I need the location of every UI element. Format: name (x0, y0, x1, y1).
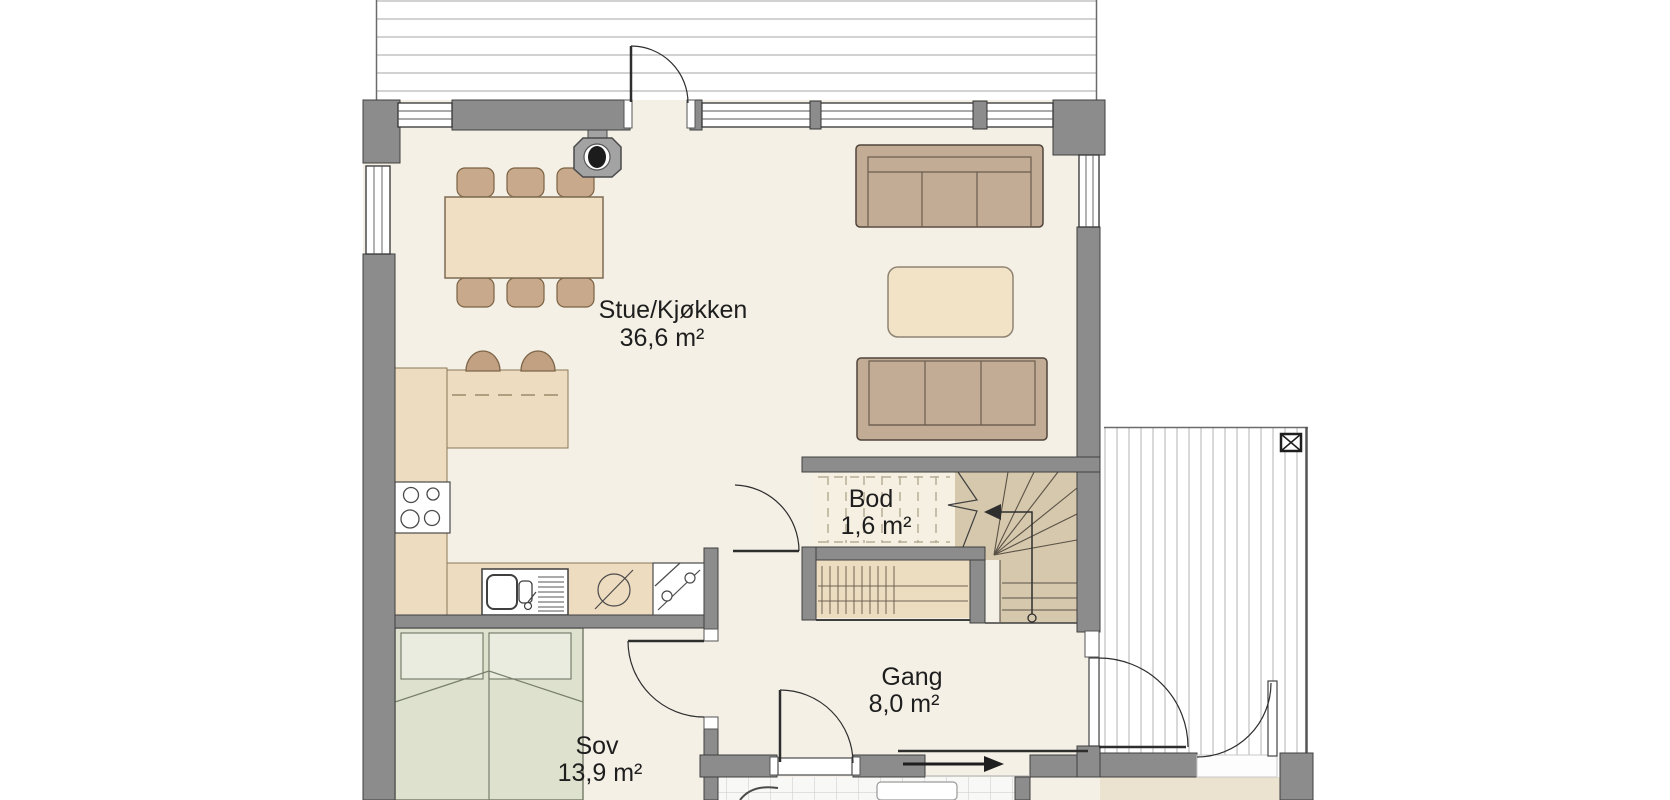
wall-corner-topright (1053, 100, 1105, 155)
wall-south-2 (853, 755, 925, 777)
sink-icon (482, 569, 568, 615)
top-deck (376, 0, 1097, 101)
room-area-stue: 36,6 m² (620, 324, 705, 352)
wall-kitchen-south (395, 615, 718, 628)
window (398, 103, 452, 127)
bathroom (718, 777, 1015, 800)
wall-southeast-1 (1100, 753, 1197, 777)
wall-bath-divider (1015, 777, 1030, 800)
floor-plan-page: Stue/Kjøkken 36,6 m² Bod 1,6 m² Gang 8,0… (0, 0, 1670, 800)
door-leaf-closed (1089, 658, 1099, 746)
wall-flight-left (802, 547, 816, 620)
door-leaf (1268, 681, 1277, 756)
door-leaf-closed (778, 758, 852, 775)
stair-lower-flight (816, 560, 970, 618)
pillow (401, 633, 483, 679)
room-label-stue: Stue/Kjøkken (599, 296, 748, 324)
wall-south-1 (700, 755, 777, 777)
sofa (857, 358, 1047, 440)
cooktop-icon (395, 482, 450, 533)
dining-chair (507, 278, 544, 307)
wall-top (452, 100, 630, 130)
room-area-bod: 1,6 m² (841, 512, 912, 540)
bedroom (395, 628, 583, 800)
top-deck-planks (376, 0, 1096, 101)
room-label-gang: Gang (881, 663, 942, 691)
room-area-gang: 8,0 m² (869, 690, 940, 718)
wall-sov-east-upper (704, 548, 718, 641)
wall-bod-top (802, 457, 1100, 472)
wall-corner-topleft (363, 100, 400, 163)
sofa (856, 145, 1043, 227)
door-opening (1197, 755, 1277, 777)
dining-chair (457, 278, 494, 307)
window (1079, 155, 1099, 227)
room-area-sov: 13,9 m² (558, 759, 643, 787)
wall-stair-divider (970, 560, 985, 623)
dining-table (445, 197, 603, 278)
entry-floor (1100, 777, 1285, 800)
oven-icon (653, 563, 705, 617)
wall-southeast-corner (1280, 753, 1313, 800)
dining-chair (557, 278, 594, 307)
pillow (489, 633, 571, 679)
window (366, 166, 390, 254)
room-label-sov: Sov (575, 732, 619, 760)
window-mullion (973, 101, 987, 129)
wall-left (363, 254, 395, 800)
floor-plan-canvas: Stue/Kjøkken 36,6 m² Bod 1,6 m² Gang 8,0… (0, 0, 1670, 800)
dining-chair (507, 168, 544, 197)
window (702, 101, 1053, 129)
dining-chair (457, 168, 494, 197)
double-bed (395, 628, 583, 800)
dining-set (445, 168, 603, 307)
kitchen-island (447, 370, 568, 448)
wall-right (1077, 227, 1100, 632)
coffee-table (888, 267, 1013, 337)
room-label-bod: Bod (849, 485, 893, 513)
deck-post-icon (1281, 434, 1301, 451)
shower-fixture (877, 782, 957, 800)
window-mullion (810, 101, 821, 129)
wall-bod-bottom (805, 547, 985, 560)
